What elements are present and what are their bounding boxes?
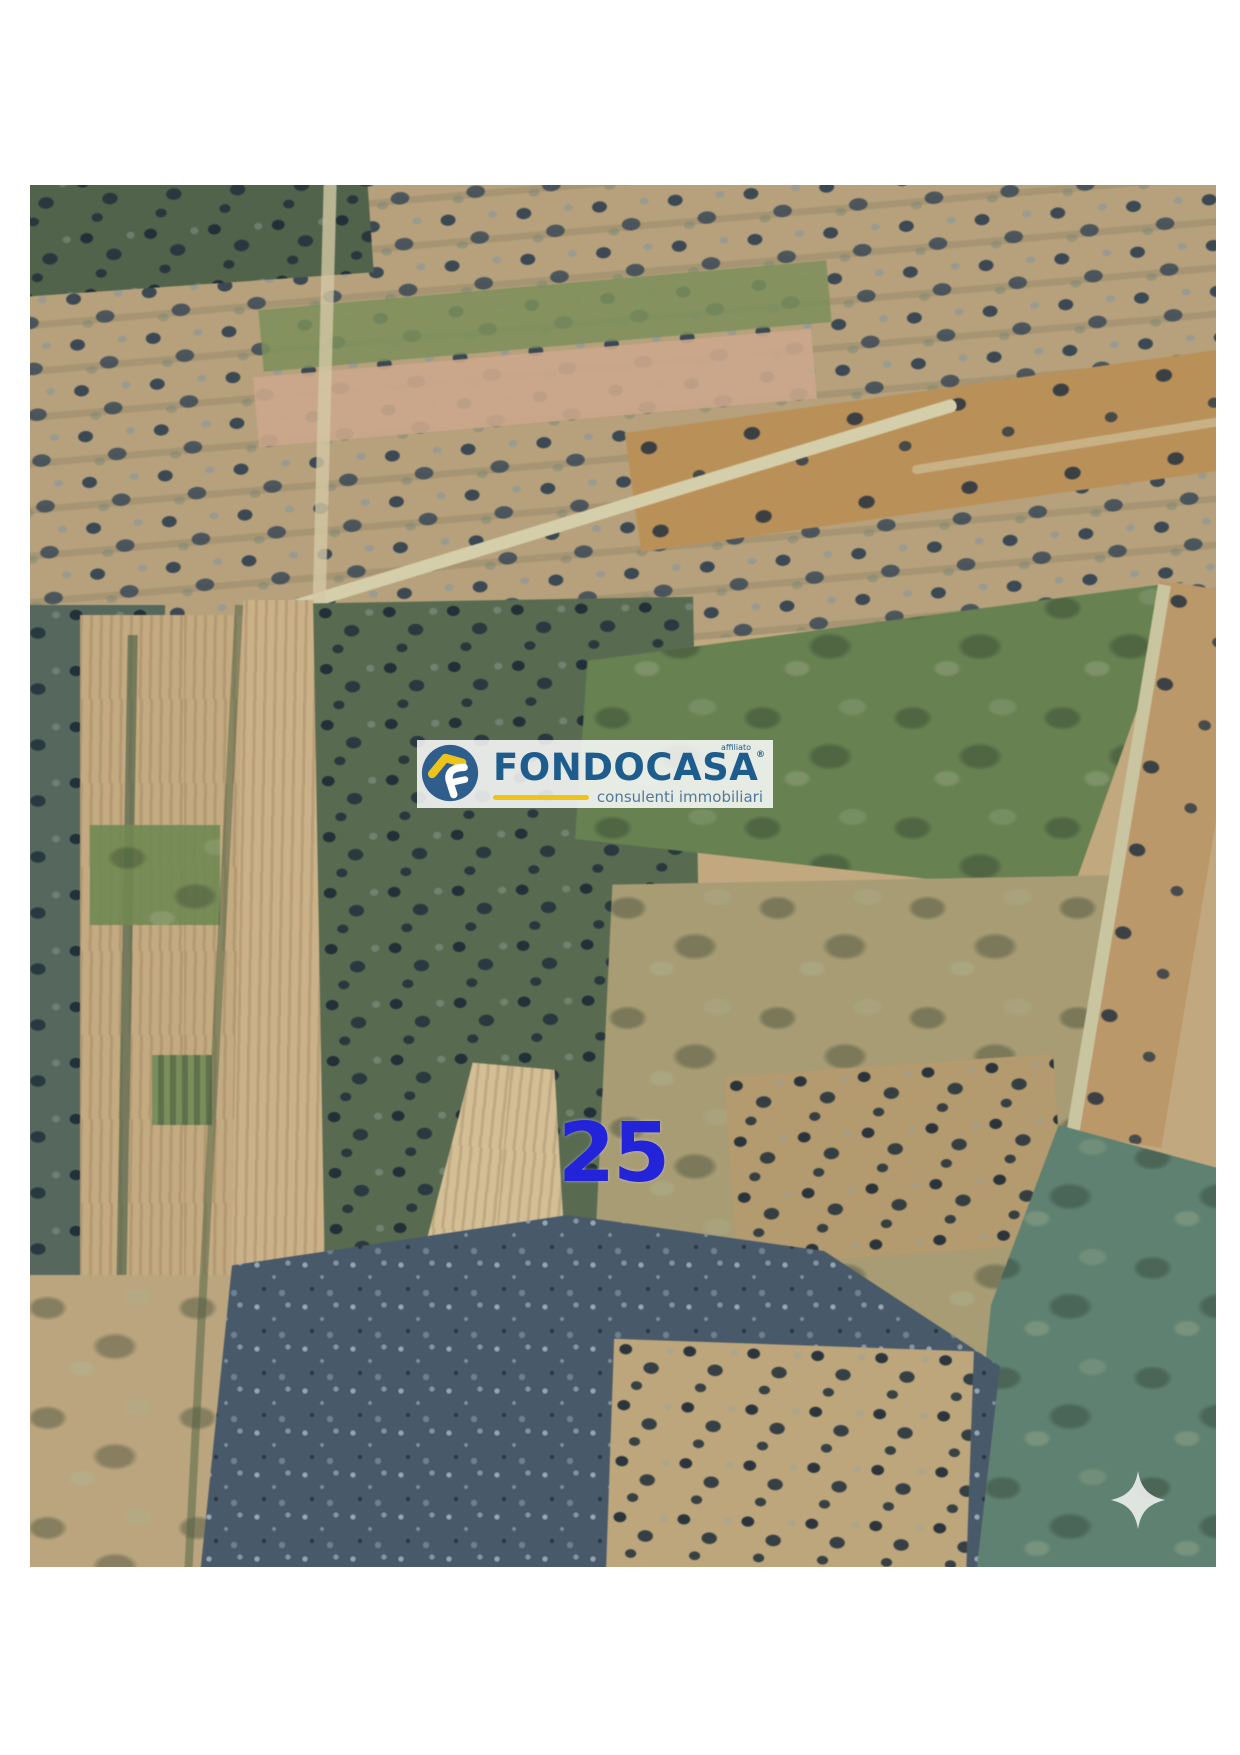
watermark-logo: FONDOCASA affiliato ® consulenti immobil… [417,740,773,808]
sparkle-diamond-icon [1107,1466,1169,1534]
fondocasa-badge-icon [420,743,480,803]
logo-underline-row: consulenti immobiliari [493,790,763,804]
yellow-underline [493,795,589,800]
terrain-layers [30,185,1216,1567]
parcel-number-label: 25 [558,1113,668,1195]
garden-patch-upper [90,825,220,925]
real-estate-listing-page: { "window": { "background_color": "#ffff… [0,0,1240,1755]
brand-text: FONDOCASA [493,749,761,786]
trees-patch-right [724,1054,1066,1267]
trees-bottom-mid [606,1339,974,1567]
satellite-photo: FONDOCASA affiliato ® consulenti immobil… [30,185,1216,1567]
registered-mark: ® [756,750,765,760]
affiliate-label: affiliato [721,743,751,752]
garden-patch-rows [152,1055,212,1125]
tagline-text: consulenti immobiliari [597,790,763,805]
